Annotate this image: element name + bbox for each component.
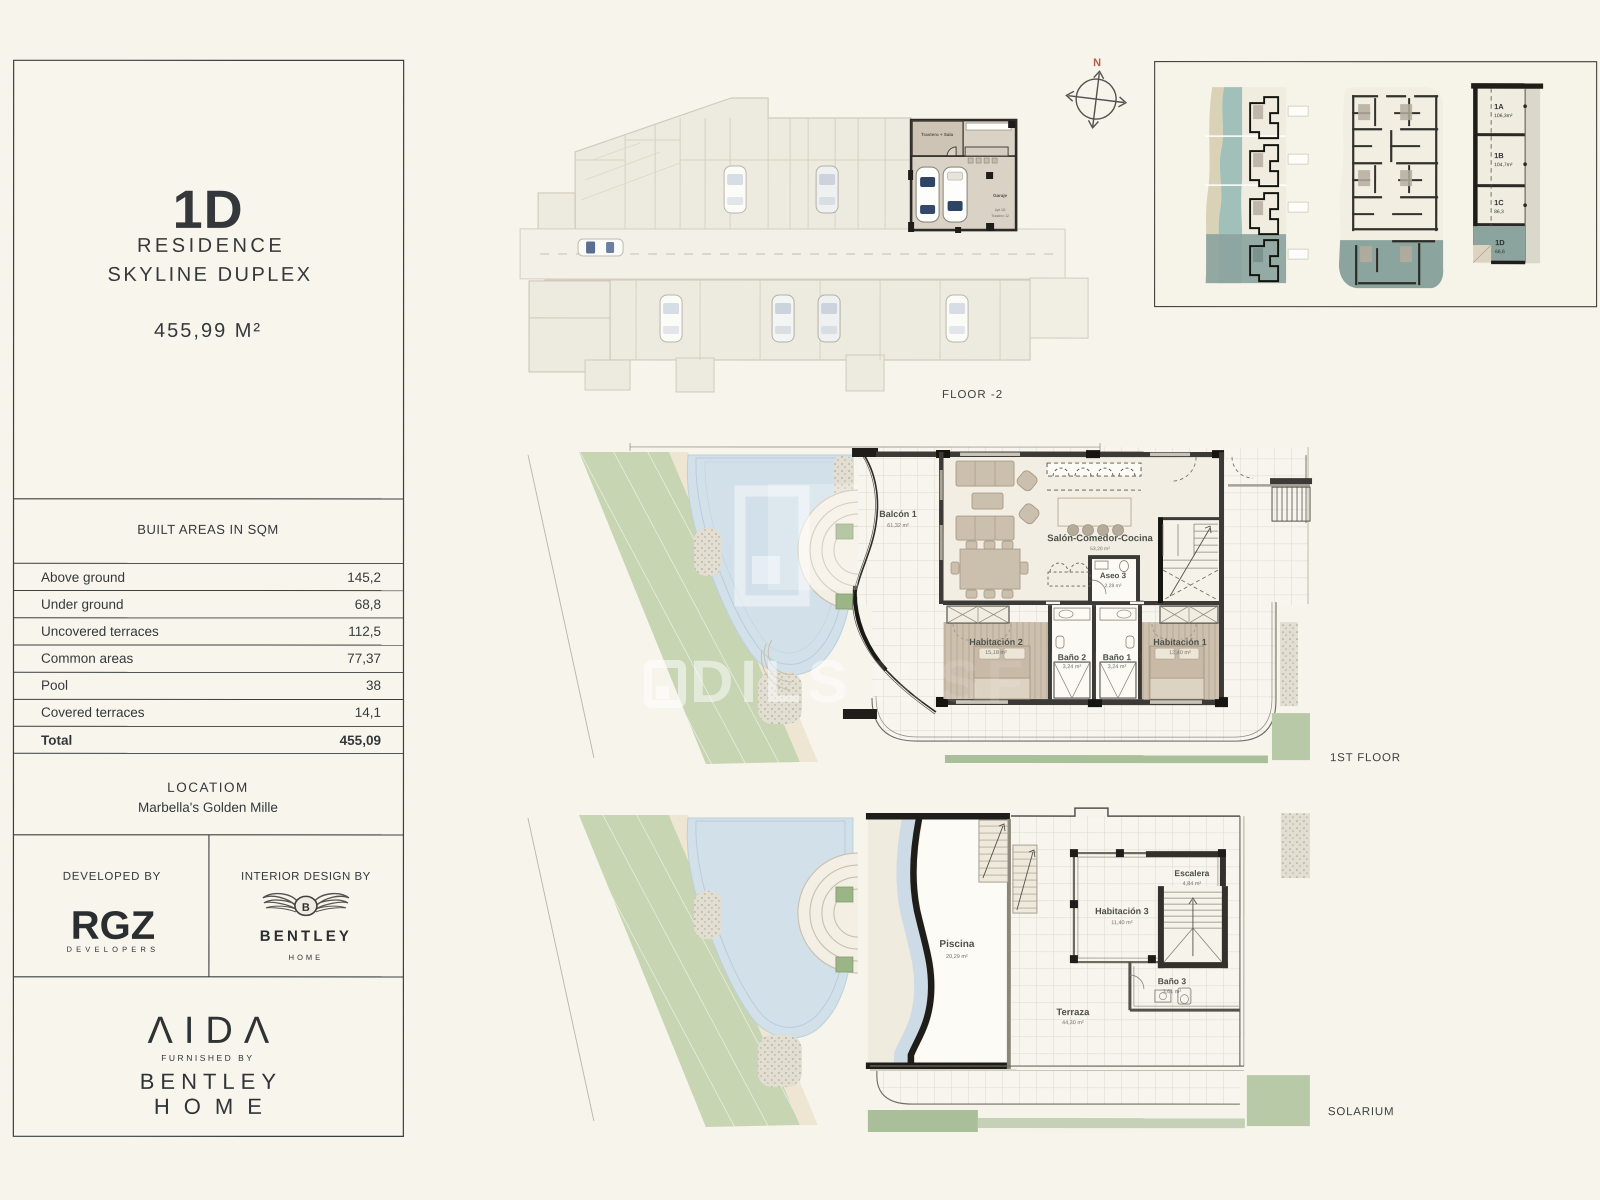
- svg-text:LOCATIOM: LOCATIOM: [167, 780, 249, 795]
- svg-text:Habitación 3: Habitación 3: [1095, 906, 1149, 916]
- svg-text:SOLARIUM: SOLARIUM: [1328, 1106, 1394, 1118]
- svg-text:145,2: 145,2: [347, 570, 381, 585]
- svg-text:FURNISHED BY: FURNISHED BY: [161, 1053, 254, 1063]
- svg-text:2,28 m²: 2,28 m²: [1105, 583, 1122, 589]
- svg-text:3,24 m²: 3,24 m²: [1063, 664, 1082, 670]
- svg-text:Uncovered terraces: Uncovered terraces: [41, 624, 159, 639]
- svg-text:Trastero 12: Trastero 12: [991, 214, 1009, 218]
- svg-text:Escalera: Escalera: [1174, 868, 1209, 878]
- svg-text:RGZ: RGZ: [71, 904, 155, 948]
- svg-text:BENTLEY: BENTLEY: [260, 928, 352, 945]
- svg-text:DEVELOPED BY: DEVELOPED BY: [63, 871, 161, 883]
- svg-text:SKYLINE DUPLEX: SKYLINE DUPLEX: [108, 264, 313, 286]
- svg-text:104,7m²: 104,7m²: [1494, 162, 1513, 168]
- svg-text:44,30 m²: 44,30 m²: [1062, 1020, 1084, 1026]
- svg-text:66,6: 66,6: [1495, 249, 1505, 255]
- svg-text:1C: 1C: [1494, 198, 1504, 207]
- svg-text:1ST FLOOR: 1ST FLOOR: [1330, 752, 1401, 764]
- svg-text:38: 38: [366, 678, 381, 693]
- svg-text:INTERIOR DESIGN BY: INTERIOR DESIGN BY: [241, 871, 371, 883]
- svg-text:77,37: 77,37: [347, 651, 381, 666]
- svg-text:Balcón 1: Balcón 1: [879, 509, 917, 519]
- svg-text:Trastero + Sala: Trastero + Sala: [921, 132, 954, 137]
- svg-text:1B: 1B: [1494, 151, 1504, 160]
- svg-text:FLOOR -2: FLOOR -2: [942, 389, 1003, 401]
- svg-text:Above ground: Above ground: [41, 570, 125, 585]
- svg-text:Total: Total: [41, 733, 72, 748]
- svg-text:86,3: 86,3: [1494, 209, 1504, 215]
- svg-text:1D: 1D: [1495, 238, 1505, 247]
- svg-text:HOME: HOME: [289, 953, 324, 962]
- svg-text:14,1: 14,1: [355, 705, 381, 720]
- svg-text:N: N: [1093, 57, 1101, 69]
- svg-text:Baño 3: Baño 3: [1158, 976, 1187, 986]
- svg-text:Habitación 1: Habitación 1: [1153, 637, 1207, 647]
- svg-text:53,20 m²: 53,20 m²: [1090, 546, 1110, 552]
- svg-text:Common areas: Common areas: [41, 651, 134, 666]
- svg-text:Baño 1: Baño 1: [1103, 652, 1132, 662]
- svg-text:3,24 m²: 3,24 m²: [1108, 664, 1127, 670]
- svg-text:20,29 m²: 20,29 m²: [946, 954, 968, 960]
- svg-text:112,5: 112,5: [348, 624, 381, 639]
- svg-text:Under ground: Under ground: [41, 597, 124, 612]
- svg-text:DILS: DILS: [690, 648, 855, 715]
- svg-text:Pool: Pool: [41, 678, 68, 693]
- svg-text:12,40 m²: 12,40 m²: [1169, 650, 1191, 656]
- svg-text:Aseo 3: Aseo 3: [1100, 571, 1127, 580]
- svg-text:68,8: 68,8: [355, 597, 381, 612]
- svg-text:455,99 M²: 455,99 M²: [154, 320, 262, 342]
- svg-text:DEVELOPERS: DEVELOPERS: [66, 945, 159, 954]
- svg-text:BENTLEY: BENTLEY: [140, 1069, 282, 1094]
- svg-text:ΛIDΛ: ΛIDΛ: [147, 1010, 280, 1052]
- svg-text:Baño 2: Baño 2: [1058, 652, 1087, 662]
- svg-text:11,40 m²: 11,40 m²: [1111, 920, 1132, 926]
- svg-text:106,3m²: 106,3m²: [1494, 113, 1513, 119]
- svg-text:ILSF: ILSF: [872, 648, 1030, 715]
- svg-text:455,09: 455,09: [340, 733, 381, 748]
- svg-text:4,84 m²: 4,84 m²: [1183, 881, 1202, 887]
- svg-text:Apt 1D: Apt 1D: [995, 208, 1006, 212]
- svg-text:BUILT AREAS IN SQM: BUILT AREAS IN SQM: [137, 522, 278, 537]
- svg-text:Garaje: Garaje: [993, 193, 1008, 198]
- svg-text:Covered terraces: Covered terraces: [41, 705, 145, 720]
- svg-text:Salón-Comedor-Cocina: Salón-Comedor-Cocina: [1047, 533, 1153, 544]
- svg-text:Piscina: Piscina: [939, 939, 974, 950]
- svg-text:1D: 1D: [173, 180, 244, 240]
- svg-text:Habitación 2: Habitación 2: [969, 637, 1023, 647]
- svg-text:HOME: HOME: [154, 1094, 276, 1119]
- svg-text:Marbella's Golden Mille: Marbella's Golden Mille: [138, 800, 278, 815]
- svg-text:Terraza: Terraza: [1056, 1007, 1090, 1018]
- svg-text:3,61 m²: 3,61 m²: [1163, 989, 1182, 995]
- svg-text:1A: 1A: [1494, 102, 1504, 111]
- svg-text:RESIDENCE: RESIDENCE: [137, 235, 285, 257]
- svg-text:61,32 m²: 61,32 m²: [887, 523, 909, 529]
- svg-text:B: B: [302, 902, 310, 914]
